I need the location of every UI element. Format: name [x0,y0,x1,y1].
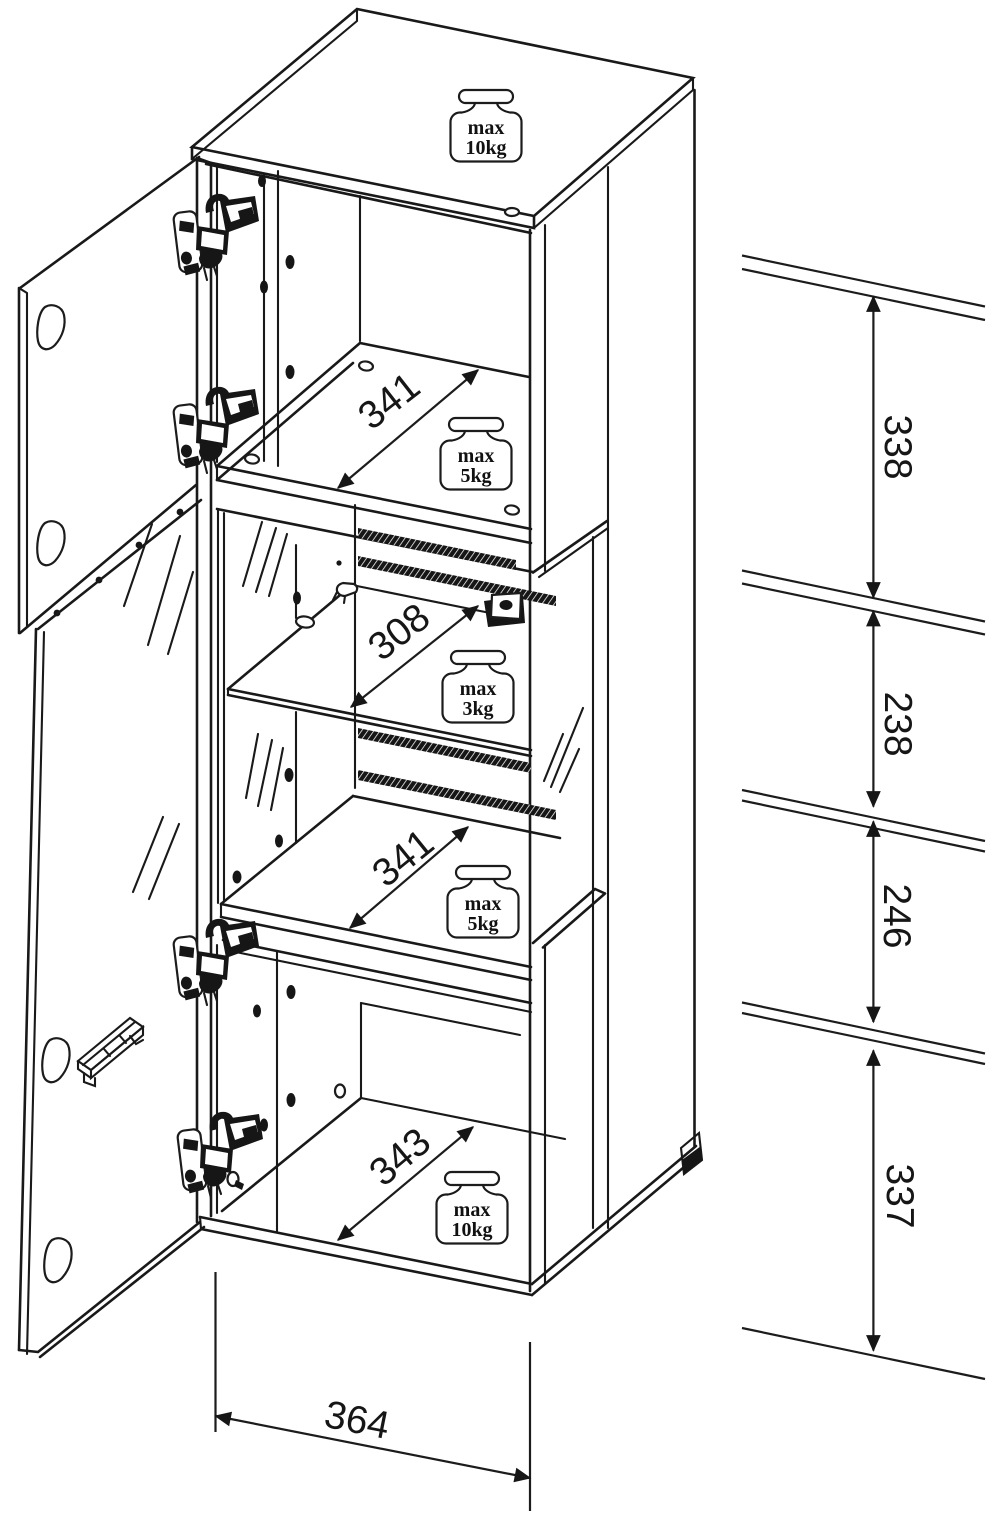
svg-text:5kg: 5kg [460,465,491,487]
svg-text:337: 337 [878,1163,921,1228]
svg-text:max: max [465,893,502,915]
svg-text:3kg: 3kg [462,698,493,720]
svg-text:10kg: 10kg [451,1219,492,1241]
svg-text:max: max [454,1199,491,1221]
svg-text:343: 343 [362,1120,439,1195]
svg-text:341: 341 [350,364,428,438]
svg-text:246: 246 [875,883,918,948]
svg-text:max: max [468,117,505,139]
svg-text:338: 338 [876,414,919,479]
svg-text:10kg: 10kg [465,137,506,159]
svg-text:238: 238 [876,691,919,756]
svg-text:max: max [458,445,495,467]
svg-text:max: max [460,678,497,700]
svg-text:5kg: 5kg [467,913,498,935]
svg-text:308: 308 [360,595,438,669]
svg-text:341: 341 [364,821,442,895]
